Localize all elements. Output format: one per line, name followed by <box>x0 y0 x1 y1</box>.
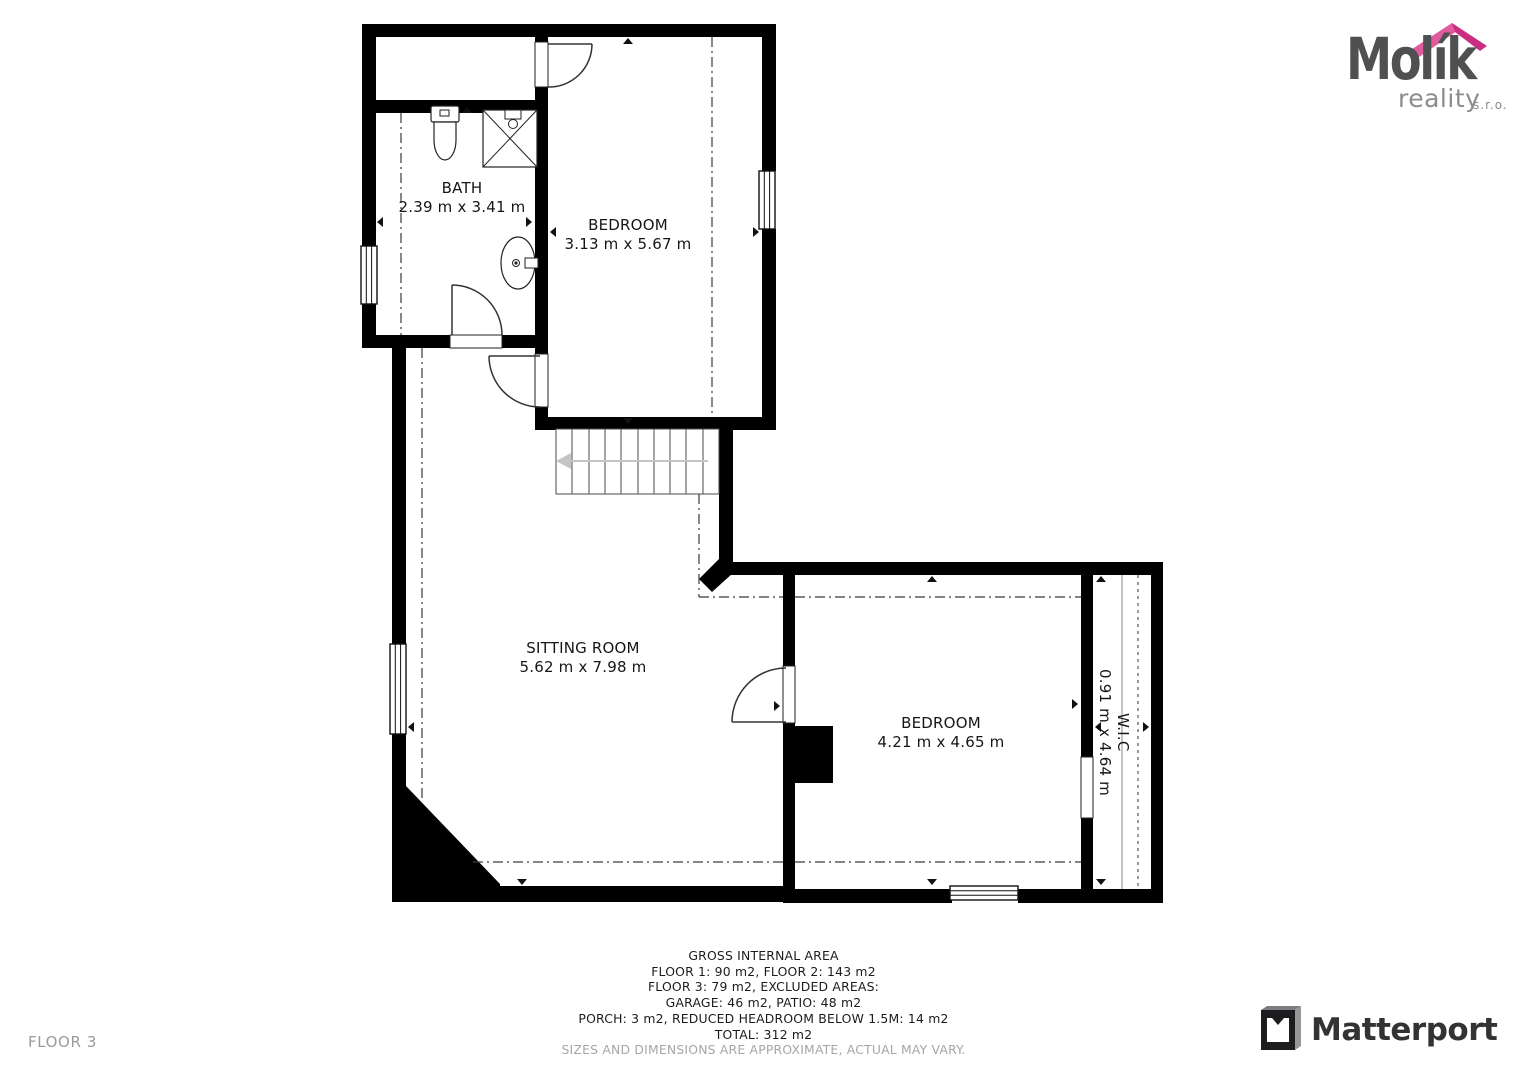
matterport-brand-name: Matterport <box>1311 1012 1497 1048</box>
floor-label: FLOOR 3 <box>28 1033 97 1051</box>
bedroom-top-window <box>759 171 775 229</box>
summary-line: GROSS INTERNAL AREA <box>0 948 1527 964</box>
floor-plan-drawing <box>0 0 1527 1080</box>
room-dims: 2.39 m x 3.41 m <box>362 198 562 217</box>
landing-door <box>489 354 548 407</box>
walls-layer <box>362 24 1163 903</box>
toilet-icon <box>431 106 459 160</box>
sitting-room-label: SITTING ROOM 5.62 m x 7.98 m <box>458 639 708 677</box>
bedroom-right-label: BEDROOM 4.21 m x 4.65 m <box>816 714 1066 752</box>
room-name: W.I.C <box>1114 575 1132 889</box>
room-name: BEDROOM <box>816 714 1066 733</box>
room-name: BATH <box>362 179 562 198</box>
wic-opening <box>1081 757 1093 818</box>
windows-layer <box>361 171 1018 900</box>
bath-label: BATH 2.39 m x 3.41 m <box>362 179 562 217</box>
diagonal-corner-wall <box>392 786 500 902</box>
bath-window <box>361 246 377 304</box>
matterport-logo-icon <box>1253 1004 1307 1060</box>
room-name: BEDROOM <box>528 216 728 235</box>
bedroom-right-window <box>950 886 1018 900</box>
wic-label: W.I.C 0.91 m x 4.64 m <box>1094 575 1132 889</box>
room-dims: 0.91 m x 4.64 m <box>1096 575 1114 889</box>
molik-logo: Molík reality s.r.o. <box>1340 14 1515 116</box>
summary-line: FLOOR 3: 79 m2, EXCLUDED AREAS: <box>0 979 1527 995</box>
floorplan-page: BATH 2.39 m x 3.41 m BEDROOM 3.13 m x 5.… <box>0 0 1527 1080</box>
room-dims: 4.21 m x 4.65 m <box>816 733 1066 752</box>
bath-door <box>450 285 502 348</box>
bedroom-top-door <box>535 42 592 87</box>
sitting-room-window <box>390 644 406 734</box>
matterport-logo: Matterport <box>1253 1004 1515 1066</box>
shower-icon <box>483 110 537 167</box>
bedroom-right-door <box>732 666 795 723</box>
molik-suffix: s.r.o. <box>1473 98 1508 112</box>
room-name: SITTING ROOM <box>458 639 708 658</box>
room-dims: 5.62 m x 7.98 m <box>458 658 708 677</box>
molik-subtitle: reality <box>1398 84 1480 113</box>
bedroom-top-label: BEDROOM 3.13 m x 5.67 m <box>528 216 728 254</box>
room-dims: 3.13 m x 5.67 m <box>528 235 728 254</box>
summary-line: FLOOR 1: 90 m2, FLOOR 2: 143 m2 <box>0 964 1527 980</box>
molik-brand-name: Molík <box>1346 30 1475 88</box>
